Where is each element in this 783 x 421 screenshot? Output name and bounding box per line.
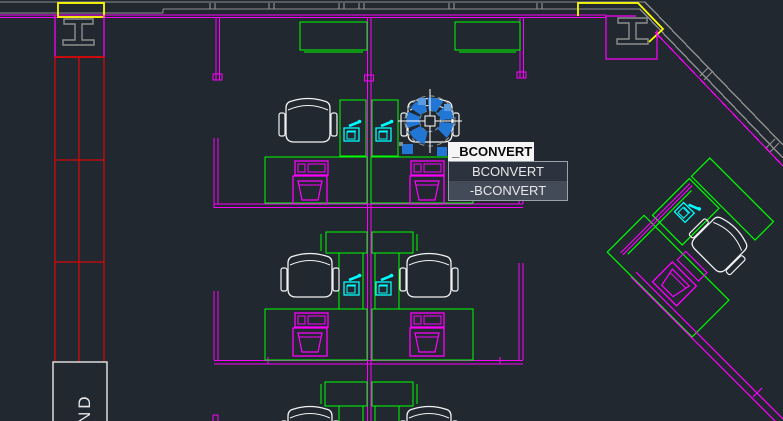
suggestion-bconvert[interactable]: BCONVERT: [449, 162, 567, 181]
overhead-cabinet: [372, 232, 413, 253]
chair: [279, 99, 337, 143]
overhead-cabinet: [372, 382, 413, 406]
phone-icon: [674, 197, 701, 224]
monitor-icon: [293, 328, 327, 356]
command-suggestion-list: BCONVERT -BCONVERT: [448, 161, 568, 201]
workstation-row-2: [265, 232, 473, 360]
keyboard-icon: [411, 313, 444, 327]
monitor-icon: [653, 262, 697, 306]
cad-viewport: ND: [0, 0, 783, 421]
overhead-cabinet: [300, 22, 367, 50]
ibeam-column-icon: [63, 19, 94, 45]
keyboard-icon: [295, 313, 328, 327]
workstation-row-3: [281, 382, 458, 421]
monitor-icon: [293, 176, 327, 204]
pickbox: [425, 116, 435, 126]
rotated-workstation: [607, 154, 783, 337]
phone-icon: [376, 120, 393, 141]
chair: [281, 254, 339, 298]
phone-icon: [344, 274, 361, 295]
chair: [281, 407, 339, 421]
overhead-cabinet: [325, 382, 367, 406]
diagonal-partition: [631, 272, 783, 421]
room-label: ND: [75, 393, 94, 421]
wall-magenta-lines: [0, 15, 783, 166]
phone-icon: [376, 274, 393, 295]
command-input[interactable]: _BCONVERT: [448, 142, 534, 161]
monitor-icon: [410, 176, 444, 204]
chair: [684, 208, 756, 280]
drawing-canvas[interactable]: ND: [0, 0, 783, 421]
monitor-icon: [410, 328, 444, 356]
phone-icon: [344, 120, 361, 141]
ibeam-column-icon: [617, 18, 648, 44]
column-left: [55, 3, 104, 57]
overhead-cabinet: [455, 22, 520, 50]
keyboard-icon: [411, 161, 444, 175]
suggestion-dash-bconvert[interactable]: -BCONVERT: [449, 181, 567, 200]
red-grid-band: [55, 57, 104, 362]
room-label-box: ND: [53, 362, 107, 421]
wall-ticks: [210, 3, 779, 152]
keyboard-icon: [677, 251, 707, 281]
chair: [400, 254, 458, 298]
overhead-cabinet: [326, 232, 367, 253]
column-right: [578, 3, 663, 59]
chair: [400, 407, 458, 421]
keyboard-icon: [295, 161, 328, 175]
